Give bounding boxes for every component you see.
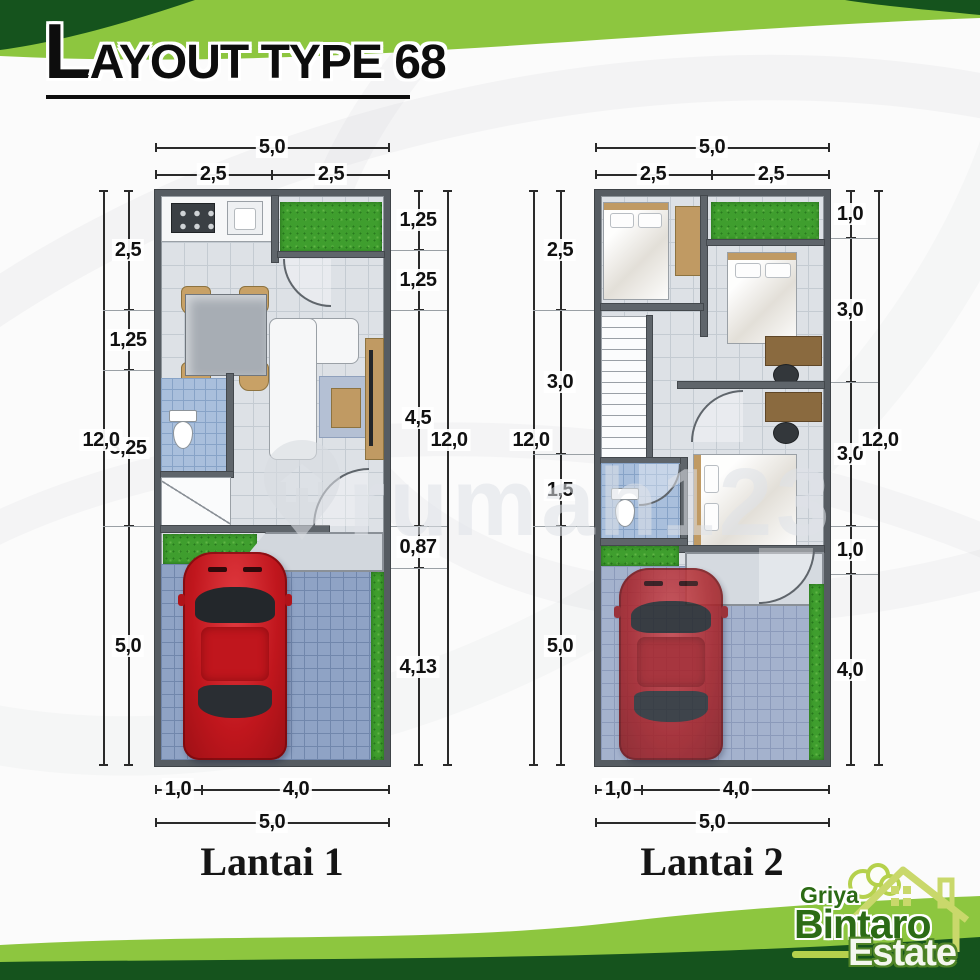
dim-line-right-outer [447, 190, 449, 766]
windshield [631, 601, 710, 634]
dim-label: 4,13 [397, 656, 440, 678]
dim-label: 4,0 [280, 778, 312, 800]
wall [227, 374, 233, 476]
grass-strip [601, 546, 679, 566]
dim-line-left-outer [103, 190, 105, 766]
dim-line-left-outer [533, 190, 535, 766]
dim-label: 2,5 [112, 239, 144, 261]
dim-label: 5,0 [544, 635, 576, 657]
red-car-below [619, 568, 723, 760]
wall [601, 539, 687, 545]
dim-label: 12,0 [80, 429, 123, 451]
dim-label: 1,5 [544, 479, 576, 501]
dim-ext-line [533, 310, 595, 311]
car-roof [637, 637, 706, 687]
bed [693, 454, 797, 546]
side-mirror [285, 594, 292, 606]
coffee-table [331, 388, 361, 428]
bed [727, 252, 797, 344]
dim-ext-line [830, 526, 878, 527]
wall [278, 252, 384, 257]
dim-label: 3,0 [834, 299, 866, 321]
logo-text-estate: Estate [848, 932, 956, 975]
grass-strip [809, 584, 824, 760]
car-roof [201, 627, 270, 681]
headboard [604, 203, 668, 210]
dining-table [185, 294, 267, 376]
wardrobe [675, 206, 703, 276]
dim-label: 12,0 [428, 429, 471, 451]
pillow [735, 263, 761, 278]
dim-label: 2,5 [315, 163, 347, 185]
page-title-initial: L [44, 7, 90, 95]
door-arc [283, 259, 331, 307]
tv-icon [369, 350, 373, 446]
door-arc [691, 390, 743, 442]
grass-patch [711, 202, 819, 240]
dim-ext-line [533, 526, 595, 527]
poster-canvas: LAYOUT TYPE 68 5,0 2,5 2,5 2,5 1,25 3,25… [0, 0, 980, 980]
wall [601, 304, 703, 310]
dim-ext-line [390, 310, 447, 311]
dim-label: 1,25 [397, 269, 440, 291]
stairs [601, 316, 649, 460]
hood-vent [208, 567, 227, 572]
pillow [765, 263, 791, 278]
bed [603, 202, 669, 300]
dim-ext-line [830, 238, 878, 239]
dim-label: 5,0 [256, 136, 288, 158]
side-mirror [721, 606, 728, 618]
dim-label: 2,5 [544, 239, 576, 261]
dim-tick [201, 785, 203, 795]
dim-label: 1,25 [107, 329, 150, 351]
dim-ext-line [390, 250, 447, 251]
dim-tick [711, 170, 713, 180]
dim-label: 12,0 [859, 429, 902, 451]
logo-underline [792, 951, 852, 958]
pillow [704, 465, 719, 493]
dim-label: 5,0 [696, 811, 728, 833]
watermark-house-pin-icon [262, 438, 342, 542]
dim-label: 2,5 [197, 163, 229, 185]
dim-tick [271, 170, 273, 180]
dim-label: 4,5 [402, 407, 434, 429]
pillow [704, 503, 719, 531]
dim-label: 1,25 [397, 209, 440, 231]
wall [647, 316, 652, 462]
headboard [728, 253, 796, 260]
hood-vent [679, 581, 698, 586]
dim-label: 12,0 [510, 429, 553, 451]
sink-basin [234, 208, 256, 230]
sink-icon [227, 201, 263, 235]
dim-tick [641, 785, 643, 795]
dim-label: 2,5 [755, 163, 787, 185]
red-car [183, 552, 287, 760]
dim-ext-line [533, 454, 595, 455]
headboard [694, 455, 701, 545]
dim-ext-line [390, 526, 447, 527]
stairs [161, 477, 231, 528]
dim-label: 1,0 [602, 778, 634, 800]
wall [701, 196, 707, 336]
dim-label: 5,0 [256, 811, 288, 833]
dim-ext-line [390, 568, 447, 569]
dim-ext-line [103, 526, 155, 527]
dim-label: 1,0 [834, 203, 866, 225]
dim-label: 1,0 [162, 778, 194, 800]
dim-label: 3,0 [544, 371, 576, 393]
rear-window [634, 691, 709, 722]
dim-ext-line [103, 370, 155, 371]
wall [707, 240, 824, 245]
windshield [195, 587, 274, 622]
dim-label: 5,0 [696, 136, 728, 158]
grass-strip [371, 572, 384, 760]
dim-label: 0,87 [397, 536, 440, 558]
page-title: LAYOUT TYPE 68 [44, 12, 446, 90]
desk [765, 336, 822, 366]
tv-cabinet [365, 338, 384, 460]
grass-patch [280, 202, 382, 252]
dim-ext-line [830, 382, 878, 383]
dim-label: 1,0 [834, 539, 866, 561]
dim-label: 5,0 [112, 635, 144, 657]
stove-icon [171, 203, 215, 233]
page-title-rest: AYOUT TYPE 68 [90, 36, 446, 89]
hood-vent [644, 581, 663, 586]
dim-label: 2,5 [637, 163, 669, 185]
desk-chair [773, 422, 799, 444]
title-underline [46, 95, 410, 99]
hood-vent [243, 567, 262, 572]
desk [765, 392, 822, 422]
dim-label: 4,0 [834, 659, 866, 681]
side-mirror [178, 594, 185, 606]
wall [678, 382, 824, 388]
dim-label: 4,0 [720, 778, 752, 800]
dim-ext-line [830, 574, 878, 575]
side-mirror [614, 606, 621, 618]
dim-line-left-inner [128, 190, 130, 766]
dim-line-right-outer [878, 190, 880, 766]
rear-window [198, 685, 273, 718]
dim-line-left-inner [560, 190, 562, 766]
dim-ext-line [103, 310, 155, 311]
pillow [638, 213, 662, 228]
floorplan-lantai-2 [595, 190, 830, 766]
pillow [610, 213, 634, 228]
bathroom-floor [161, 378, 229, 474]
wall [681, 458, 687, 546]
